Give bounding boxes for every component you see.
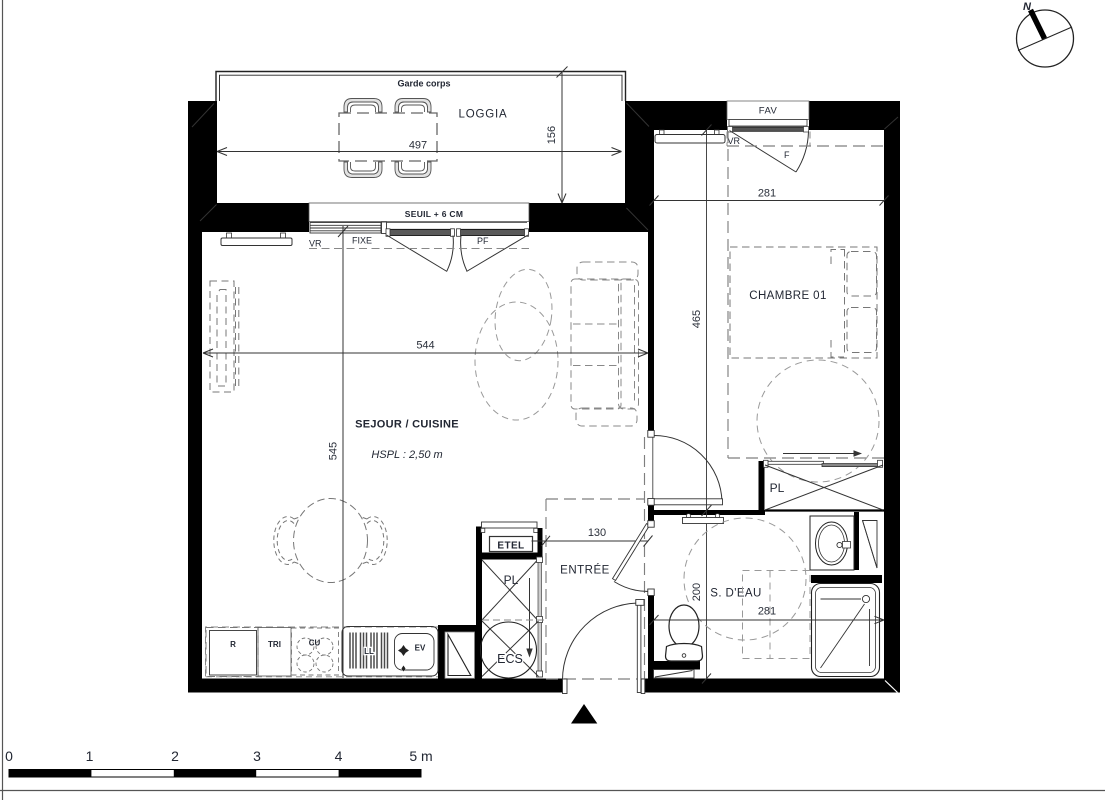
svg-text:ECS: ECS: [497, 652, 523, 666]
svg-text:SEUIL + 6 CM: SEUIL + 6 CM: [405, 209, 463, 219]
svg-text:3: 3: [253, 748, 261, 764]
svg-text:CHAMBRE 01: CHAMBRE 01: [749, 290, 827, 302]
svg-text:HSPL : 2,50 m: HSPL : 2,50 m: [371, 449, 442, 461]
svg-text:CU: CU: [309, 639, 321, 648]
svg-text:281: 281: [758, 188, 776, 200]
svg-text:ENTRÉE: ENTRÉE: [560, 564, 610, 577]
svg-text:TRI: TRI: [268, 640, 281, 649]
svg-text:VR: VR: [309, 239, 322, 249]
svg-text:F: F: [784, 150, 790, 160]
svg-text:PL: PL: [770, 481, 785, 495]
svg-text:SEJOUR / CUISINE: SEJOUR / CUISINE: [355, 419, 459, 431]
svg-text:PF: PF: [477, 236, 489, 246]
svg-text:FIXE: FIXE: [352, 236, 372, 246]
svg-text:130: 130: [588, 527, 606, 539]
svg-text:VR: VR: [728, 136, 741, 146]
svg-text:FAV: FAV: [759, 106, 778, 117]
svg-text:5 m: 5 m: [409, 748, 432, 764]
svg-text:497: 497: [409, 140, 427, 152]
svg-text:156: 156: [546, 126, 558, 144]
svg-text:545: 545: [328, 442, 340, 460]
svg-text:N: N: [1023, 1, 1032, 13]
svg-text:PL: PL: [504, 573, 519, 587]
svg-text:4: 4: [335, 748, 343, 764]
svg-text:465: 465: [691, 310, 703, 328]
svg-text:S. D'EAU: S. D'EAU: [710, 588, 761, 600]
svg-text:1: 1: [86, 748, 94, 764]
svg-text:LOGGIA: LOGGIA: [459, 109, 508, 121]
svg-text:R: R: [230, 640, 236, 649]
svg-text:2: 2: [171, 748, 179, 764]
svg-text:EV: EV: [415, 644, 426, 653]
svg-text:281: 281: [758, 606, 776, 618]
svg-text:544: 544: [416, 340, 434, 352]
svg-text:Garde corps: Garde corps: [397, 79, 450, 89]
svg-text:LL: LL: [364, 647, 374, 656]
svg-text:0: 0: [5, 748, 13, 764]
svg-text:200: 200: [691, 583, 703, 601]
svg-text:ETEL: ETEL: [497, 541, 524, 552]
